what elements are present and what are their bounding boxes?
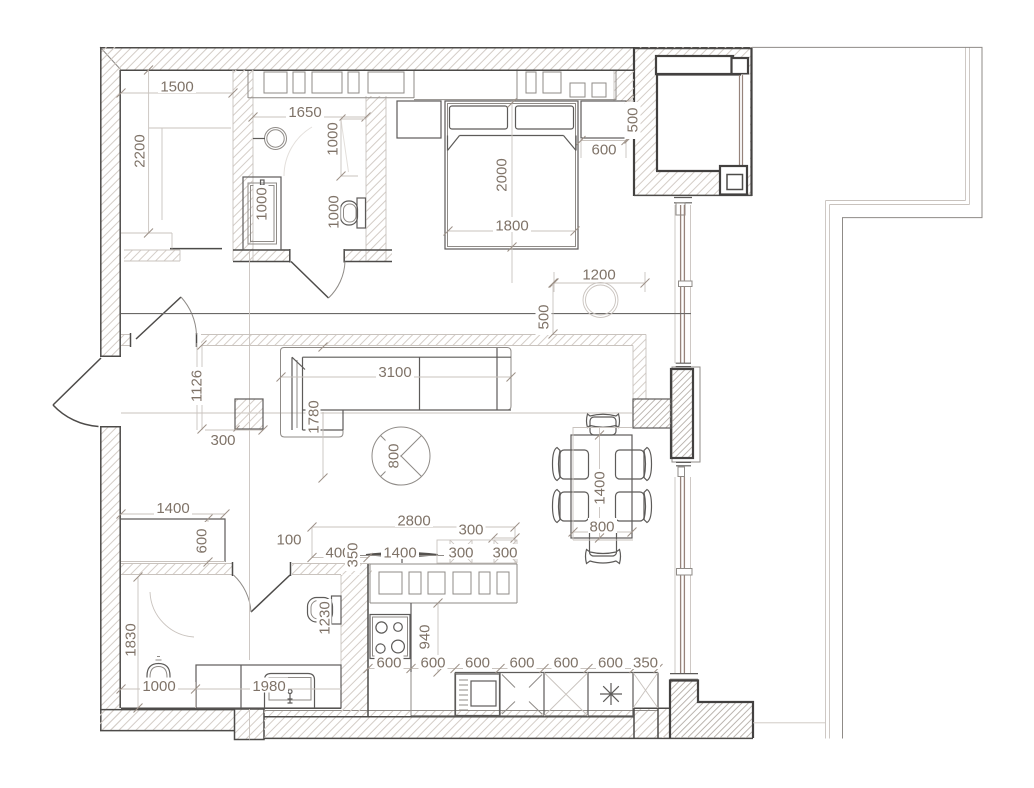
svg-text:300: 300 <box>448 545 473 562</box>
svg-text:350: 350 <box>345 542 362 567</box>
svg-text:600: 600 <box>465 655 490 672</box>
svg-text:940: 940 <box>417 624 434 649</box>
svg-text:1650: 1650 <box>288 104 321 121</box>
svg-text:600: 600 <box>591 142 616 159</box>
svg-text:500: 500 <box>625 107 642 132</box>
svg-text:300: 300 <box>458 522 483 539</box>
svg-text:600: 600 <box>194 528 211 553</box>
svg-text:300: 300 <box>492 545 517 562</box>
svg-text:1980: 1980 <box>252 678 285 695</box>
svg-text:2200: 2200 <box>132 134 149 167</box>
svg-text:1000: 1000 <box>326 195 343 228</box>
svg-text:600: 600 <box>509 655 534 672</box>
svg-text:1400: 1400 <box>383 545 416 562</box>
svg-text:1000: 1000 <box>325 122 342 155</box>
svg-text:800: 800 <box>386 443 403 468</box>
svg-text:600: 600 <box>420 655 445 672</box>
svg-text:1000: 1000 <box>142 678 175 695</box>
svg-text:1400: 1400 <box>592 471 609 504</box>
svg-text:1200: 1200 <box>582 267 615 284</box>
svg-text:1500: 1500 <box>160 79 193 96</box>
svg-text:1830: 1830 <box>123 623 140 656</box>
svg-text:3100: 3100 <box>378 364 411 381</box>
svg-text:800: 800 <box>589 519 614 536</box>
svg-text:1230: 1230 <box>317 601 334 634</box>
svg-text:300: 300 <box>210 432 235 449</box>
svg-text:600: 600 <box>553 655 578 672</box>
svg-text:350: 350 <box>633 655 658 672</box>
svg-text:1800: 1800 <box>495 218 528 235</box>
svg-text:1400: 1400 <box>156 500 189 517</box>
svg-text:600: 600 <box>376 655 401 672</box>
svg-text:1000: 1000 <box>254 187 271 220</box>
svg-text:100: 100 <box>276 532 301 549</box>
svg-text:1126: 1126 <box>189 370 206 402</box>
svg-text:2000: 2000 <box>494 158 511 191</box>
svg-text:1780: 1780 <box>306 400 323 433</box>
svg-text:600: 600 <box>598 655 623 672</box>
svg-text:500: 500 <box>536 304 553 329</box>
svg-text:2800: 2800 <box>397 513 430 530</box>
